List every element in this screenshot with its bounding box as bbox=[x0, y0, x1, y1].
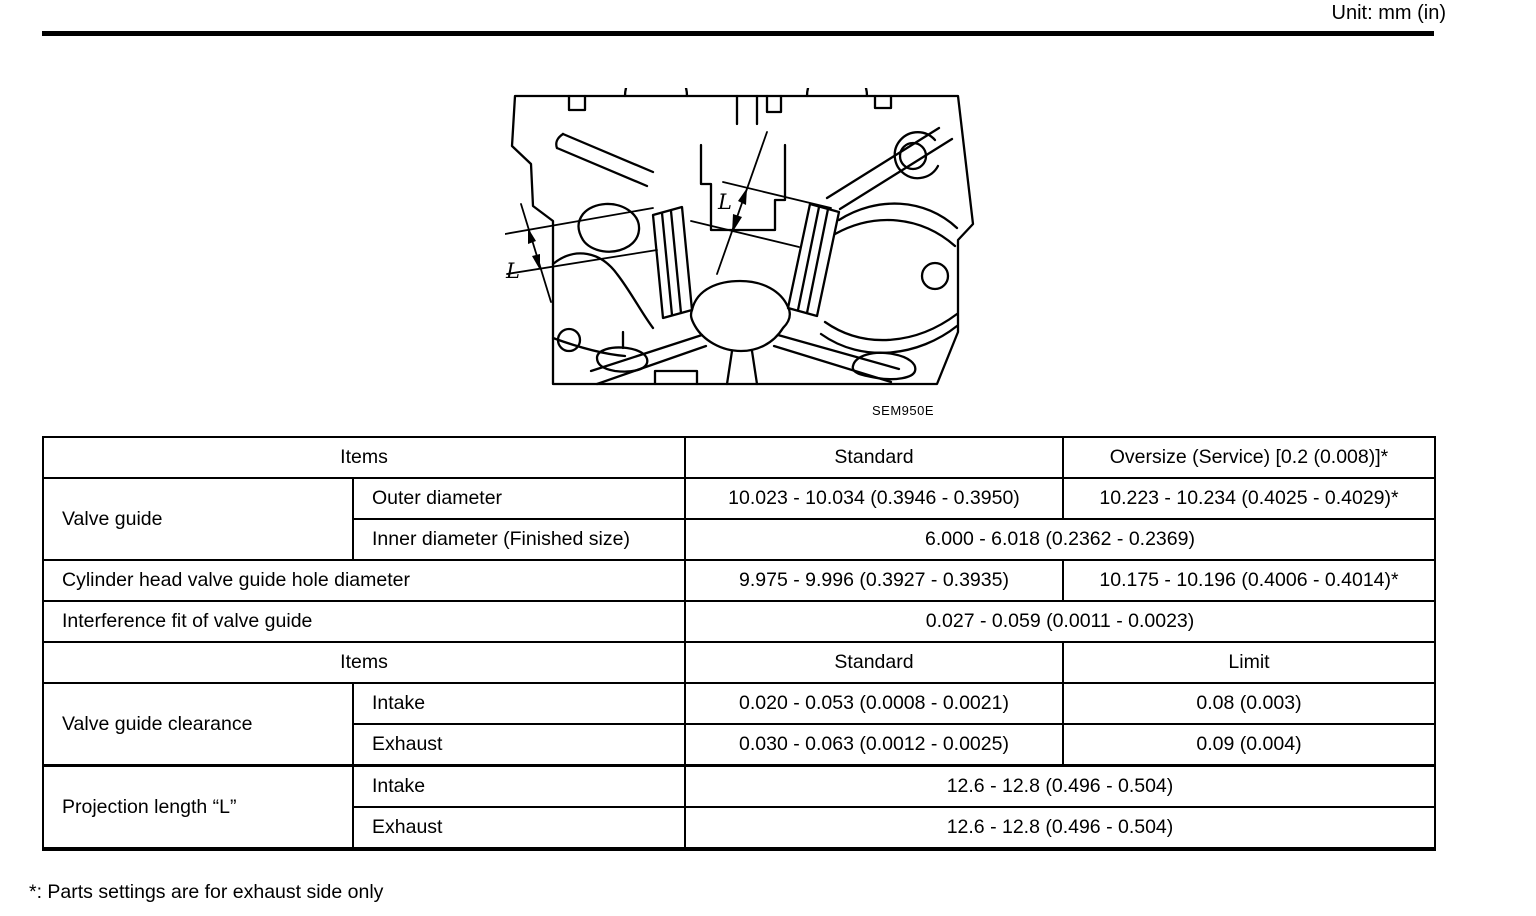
figure-caption: SEM950E bbox=[872, 403, 934, 418]
footnote: *: Parts settings are for exhaust side o… bbox=[29, 881, 383, 904]
value-inner-diameter: 6.000 - 6.018 (0.2362 - 0.2369) bbox=[685, 519, 1435, 560]
value-interference-fit: 0.027 - 0.059 (0.0011 - 0.0023) bbox=[685, 601, 1435, 642]
table-row: Projection length “L” Intake 12.6 - 12.8… bbox=[43, 766, 1435, 808]
arrowhead bbox=[738, 188, 747, 205]
value-projection-exhaust: 12.6 - 12.8 (0.496 - 0.504) bbox=[685, 807, 1435, 849]
dimension-label-center: L bbox=[717, 190, 732, 214]
row-label-interference-fit: Interference fit of valve guide bbox=[43, 601, 685, 642]
manual-page: { "page": { "unit_label": "Unit: mm (in)… bbox=[0, 0, 1536, 916]
value-clearance-intake-standard: 0.020 - 0.053 (0.0008 - 0.0021) bbox=[685, 683, 1063, 724]
valve-guide-left bbox=[653, 207, 692, 318]
table-row: Interference fit of valve guide 0.027 - … bbox=[43, 601, 1435, 642]
row-label-clearance: Valve guide clearance bbox=[43, 683, 353, 766]
top-rule bbox=[42, 31, 1434, 36]
table-row: Valve guide Outer diameter 10.023 - 10.0… bbox=[43, 478, 1435, 519]
table-row: Cylinder head valve guide hole diameter … bbox=[43, 560, 1435, 601]
value-projection-intake: 12.6 - 12.8 (0.496 - 0.504) bbox=[685, 766, 1435, 808]
table-row: Items Standard Limit bbox=[43, 642, 1435, 683]
dimension-label-left: L bbox=[505, 259, 520, 283]
row-label-outer-diameter: Outer diameter bbox=[353, 478, 685, 519]
row-label-projection-exhaust: Exhaust bbox=[353, 807, 685, 849]
water-jacket-right bbox=[821, 128, 957, 379]
table-row: Items Standard Oversize (Service) [0.2 (… bbox=[43, 437, 1435, 478]
col-header-items: Items bbox=[43, 437, 685, 478]
cylinder-head-cross-section-diagram: L L bbox=[505, 88, 975, 398]
col-header-standard: Standard bbox=[685, 437, 1063, 478]
row-label-projection-length: Projection length “L” bbox=[43, 766, 353, 850]
value-clearance-intake-limit: 0.08 (0.003) bbox=[1063, 683, 1435, 724]
col-header-standard-2: Standard bbox=[685, 642, 1063, 683]
unit-label: Unit: mm (in) bbox=[1332, 2, 1446, 25]
col-header-items-2: Items bbox=[43, 642, 685, 683]
value-hole-oversize: 10.175 - 10.196 (0.4006 - 0.4014)* bbox=[1063, 560, 1435, 601]
value-hole-standard: 9.975 - 9.996 (0.3927 - 0.3935) bbox=[685, 560, 1063, 601]
arrowhead bbox=[532, 254, 540, 270]
row-label-projection-intake: Intake bbox=[353, 766, 685, 808]
row-label-hole-diameter: Cylinder head valve guide hole diameter bbox=[43, 560, 685, 601]
value-clearance-exhaust-limit: 0.09 (0.004) bbox=[1063, 724, 1435, 766]
valve-guide-spec-table: Items Standard Oversize (Service) [0.2 (… bbox=[42, 436, 1436, 851]
cylinder-head-figure: L L bbox=[505, 88, 975, 398]
row-label-clearance-intake: Intake bbox=[353, 683, 685, 724]
row-label-valve-guide: Valve guide bbox=[43, 478, 353, 560]
valve-guide-right bbox=[788, 204, 839, 316]
value-outer-standard: 10.023 - 10.034 (0.3946 - 0.3950) bbox=[685, 478, 1063, 519]
col-header-limit: Limit bbox=[1063, 642, 1435, 683]
table-row: Valve guide clearance Intake 0.020 - 0.0… bbox=[43, 683, 1435, 724]
row-label-inner-diameter: Inner diameter (Finished size) bbox=[353, 519, 685, 560]
value-clearance-exhaust-standard: 0.030 - 0.063 (0.0012 - 0.0025) bbox=[685, 724, 1063, 766]
arrowhead bbox=[528, 228, 536, 244]
value-outer-oversize: 10.223 - 10.234 (0.4025 - 0.4029)* bbox=[1063, 478, 1435, 519]
col-header-oversize: Oversize (Service) [0.2 (0.008)]* bbox=[1063, 437, 1435, 478]
row-label-clearance-exhaust: Exhaust bbox=[353, 724, 685, 766]
